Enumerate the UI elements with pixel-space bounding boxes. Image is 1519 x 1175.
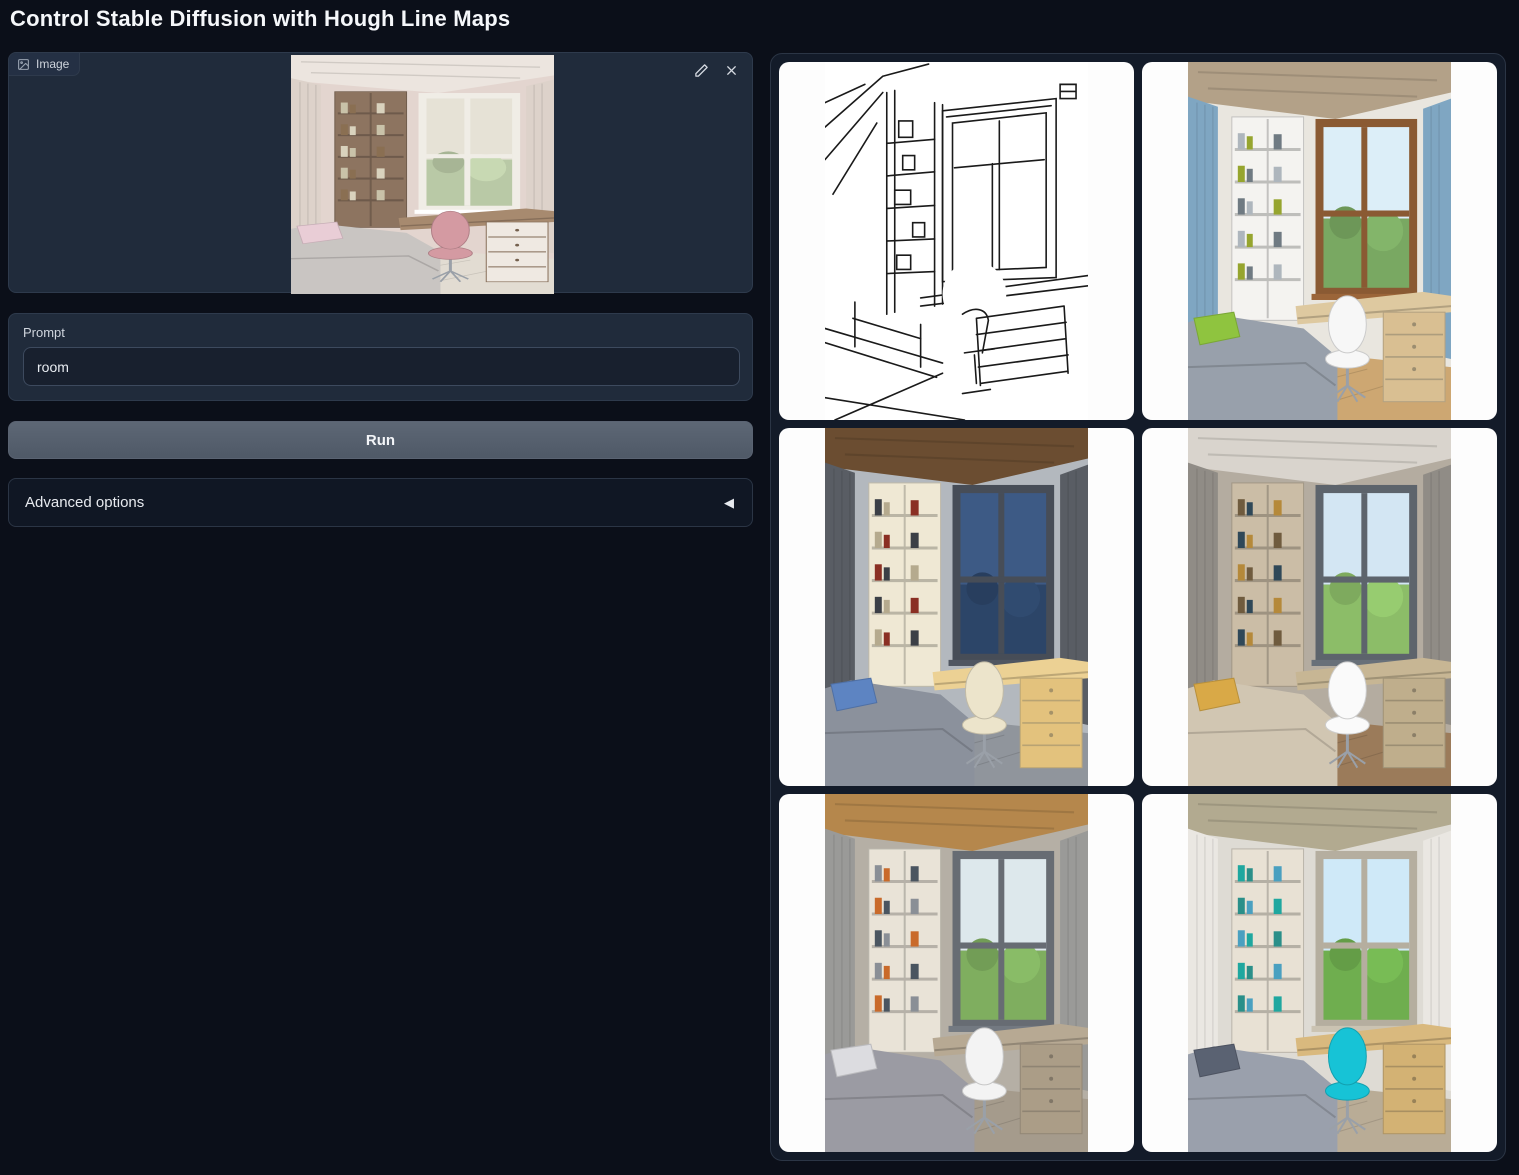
gallery-item-5[interactable] [779,794,1134,1152]
gallery-item-2[interactable] [1142,62,1497,420]
image-component-label: Image [9,53,80,76]
gallery-item-6[interactable] [1142,794,1497,1152]
gallery-image-6 [1188,794,1451,1152]
input-image-panel[interactable]: Image [8,52,753,293]
gallery-image-4 [1188,428,1451,786]
close-icon [724,63,739,81]
pencil-icon [694,63,709,81]
gallery-item-4[interactable] [1142,428,1497,786]
edit-image-button[interactable] [690,61,712,83]
run-button[interactable]: Run [8,421,753,459]
gallery-image-5 [825,794,1088,1152]
accordion-collapse-icon: ◀ [724,496,734,509]
prompt-label: Prompt [23,325,752,340]
output-gallery [770,53,1506,1161]
image-label-text: Image [36,57,69,71]
gallery-image-1 [825,62,1088,420]
gallery-item-1[interactable] [779,62,1134,420]
clear-image-button[interactable] [720,61,742,83]
gallery-item-3[interactable] [779,428,1134,786]
gallery-image-3 [825,428,1088,786]
page-title: Control Stable Diffusion with Hough Line… [10,6,510,32]
advanced-options-label: Advanced options [25,494,144,511]
image-icon [17,58,30,71]
prompt-input[interactable] [23,347,740,386]
uploaded-image [291,55,554,294]
gallery-image-2 [1188,62,1451,420]
advanced-options-accordion[interactable]: Advanced options ◀ [8,478,753,527]
prompt-panel: Prompt [8,313,753,401]
